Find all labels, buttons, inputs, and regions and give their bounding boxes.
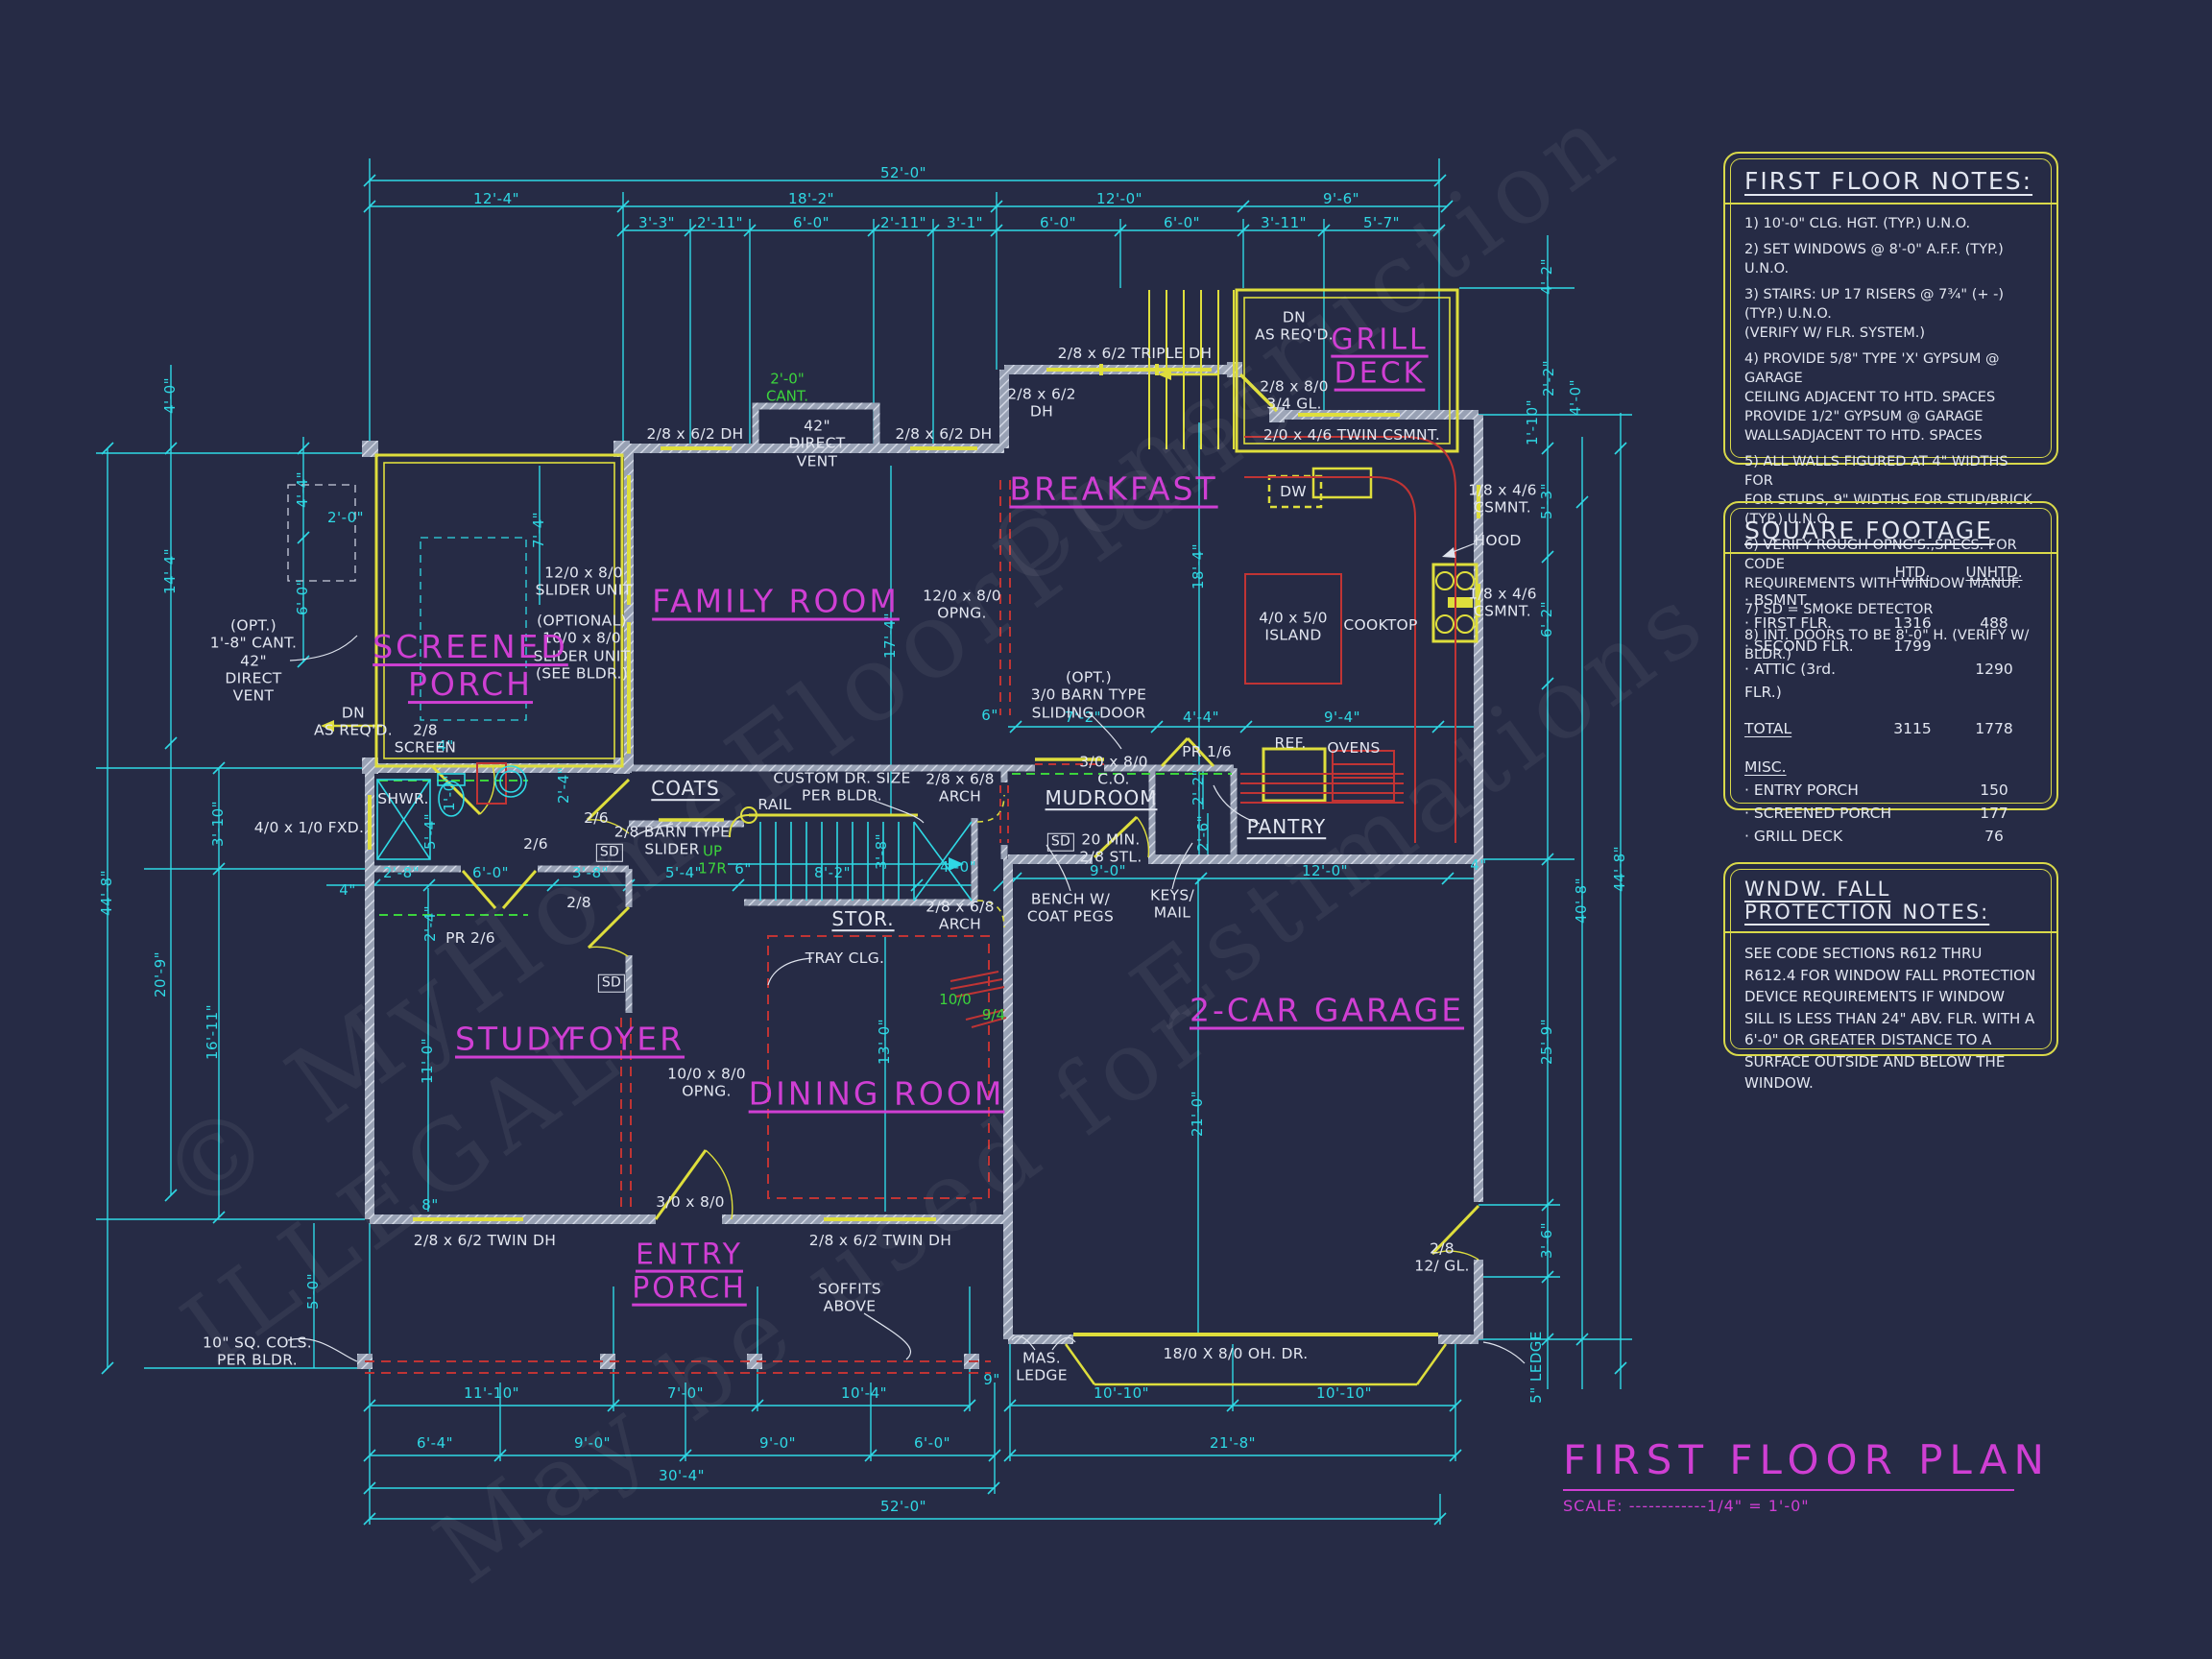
misc-row-label: ENTRY PORCH <box>1744 779 1951 802</box>
column-header-unhtd: UNHTD. <box>1951 564 2037 581</box>
divider <box>1725 552 2056 554</box>
first-floor-notes-box: FIRST FLOOR NOTES: 1) 10'-0" CLG. HGT. (… <box>1723 152 2058 465</box>
drawing-title: FIRST FLOOR PLAN <box>1563 1436 2014 1491</box>
table-row: SECOND FLR. 1799 <box>1744 635 2037 658</box>
note-item: 2) SET WINDOWS @ 8'-0" A.F.F. (TYP.) U.N… <box>1744 240 2037 278</box>
total-htd: 3115 <box>1874 717 1951 740</box>
row-unhtd <box>1951 635 2037 658</box>
misc-row: SCREENED PORCH 177 <box>1744 802 2037 825</box>
row-htd <box>1874 589 1951 612</box>
table-row: FIRST FLR. 1316 488 <box>1744 612 2037 635</box>
floor-plan-sheet: © MyHomeFloorPlansConstructionEstimation… <box>0 0 2212 1659</box>
total-unhtd: 1778 <box>1951 717 2037 740</box>
square-footage-title: SQUARE FOOTAGE <box>1744 517 2037 544</box>
row-label: SECOND FLR. <box>1744 635 1874 658</box>
misc-row: GRILL DECK 76 <box>1744 825 2037 848</box>
title-block: FIRST FLOOR PLAN SCALE: ------------1/4"… <box>1563 1436 2014 1515</box>
row-htd: 1799 <box>1874 635 1951 658</box>
green-linework <box>379 774 1232 915</box>
row-htd: 1316 <box>1874 612 1951 635</box>
misc-row: ENTRY PORCH 150 <box>1744 779 2037 802</box>
divider <box>1725 931 2056 933</box>
table-row: ATTIC (3rd. FLR.) 1290 <box>1744 658 2037 704</box>
row-label: ATTIC (3rd. FLR.) <box>1744 658 1874 704</box>
leader-lines <box>288 543 1525 1363</box>
drawing-scale: SCALE: ------------1/4" = 1'-0" <box>1563 1497 2014 1515</box>
column-header-htd: HTD. <box>1874 564 1951 581</box>
misc-row-value: 150 <box>1951 779 2037 802</box>
exterior-walls <box>370 370 1479 1339</box>
row-htd <box>1874 658 1951 704</box>
misc-row-value: 76 <box>1951 825 2037 848</box>
misc-row-label: GRILL DECK <box>1744 825 1951 848</box>
notes-title: FIRST FLOOR NOTES: <box>1744 167 2037 195</box>
misc-label: MISC. <box>1744 756 2037 779</box>
dimension-lines <box>96 158 1632 1525</box>
row-unhtd: 488 <box>1951 612 2037 635</box>
row-label: FIRST FLR. <box>1744 612 1874 635</box>
table-total-row: TOTAL 3115 1778 <box>1744 717 2037 740</box>
table-row: BSMNT. <box>1744 589 2037 612</box>
note-item: 1) 10'-0" CLG. HGT. (TYP.) U.N.O. <box>1744 214 2037 233</box>
fall-protection-title: WNDW. FALL PROTECTION NOTES: <box>1744 878 2037 924</box>
total-label: TOTAL <box>1744 717 1874 740</box>
misc-row-value: 177 <box>1951 802 2037 825</box>
interior-walls <box>370 406 1234 1013</box>
spacer <box>1744 564 1874 581</box>
row-unhtd <box>1951 589 2037 612</box>
misc-row-label: SCREENED PORCH <box>1744 802 1951 825</box>
fall-protection-notes-box: WNDW. FALL PROTECTION NOTES: SEE CODE SE… <box>1723 862 2058 1056</box>
row-label: BSMNT. <box>1744 589 1874 612</box>
note-item: 4) PROVIDE 5/8" TYPE 'X' GYPSUM @ GARAGE… <box>1744 349 2037 445</box>
fall-protection-body: SEE CODE SECTIONS R612 THRU R612.4 FOR W… <box>1744 943 2037 1094</box>
row-unhtd: 1290 <box>1951 658 2037 704</box>
square-footage-box: SQUARE FOOTAGE HTD. UNHTD. BSMNT. FIRST … <box>1723 501 2058 810</box>
divider <box>1725 203 2056 204</box>
note-item: 3) STAIRS: UP 17 RISERS @ 7¾" (+ -) (TYP… <box>1744 285 2037 343</box>
